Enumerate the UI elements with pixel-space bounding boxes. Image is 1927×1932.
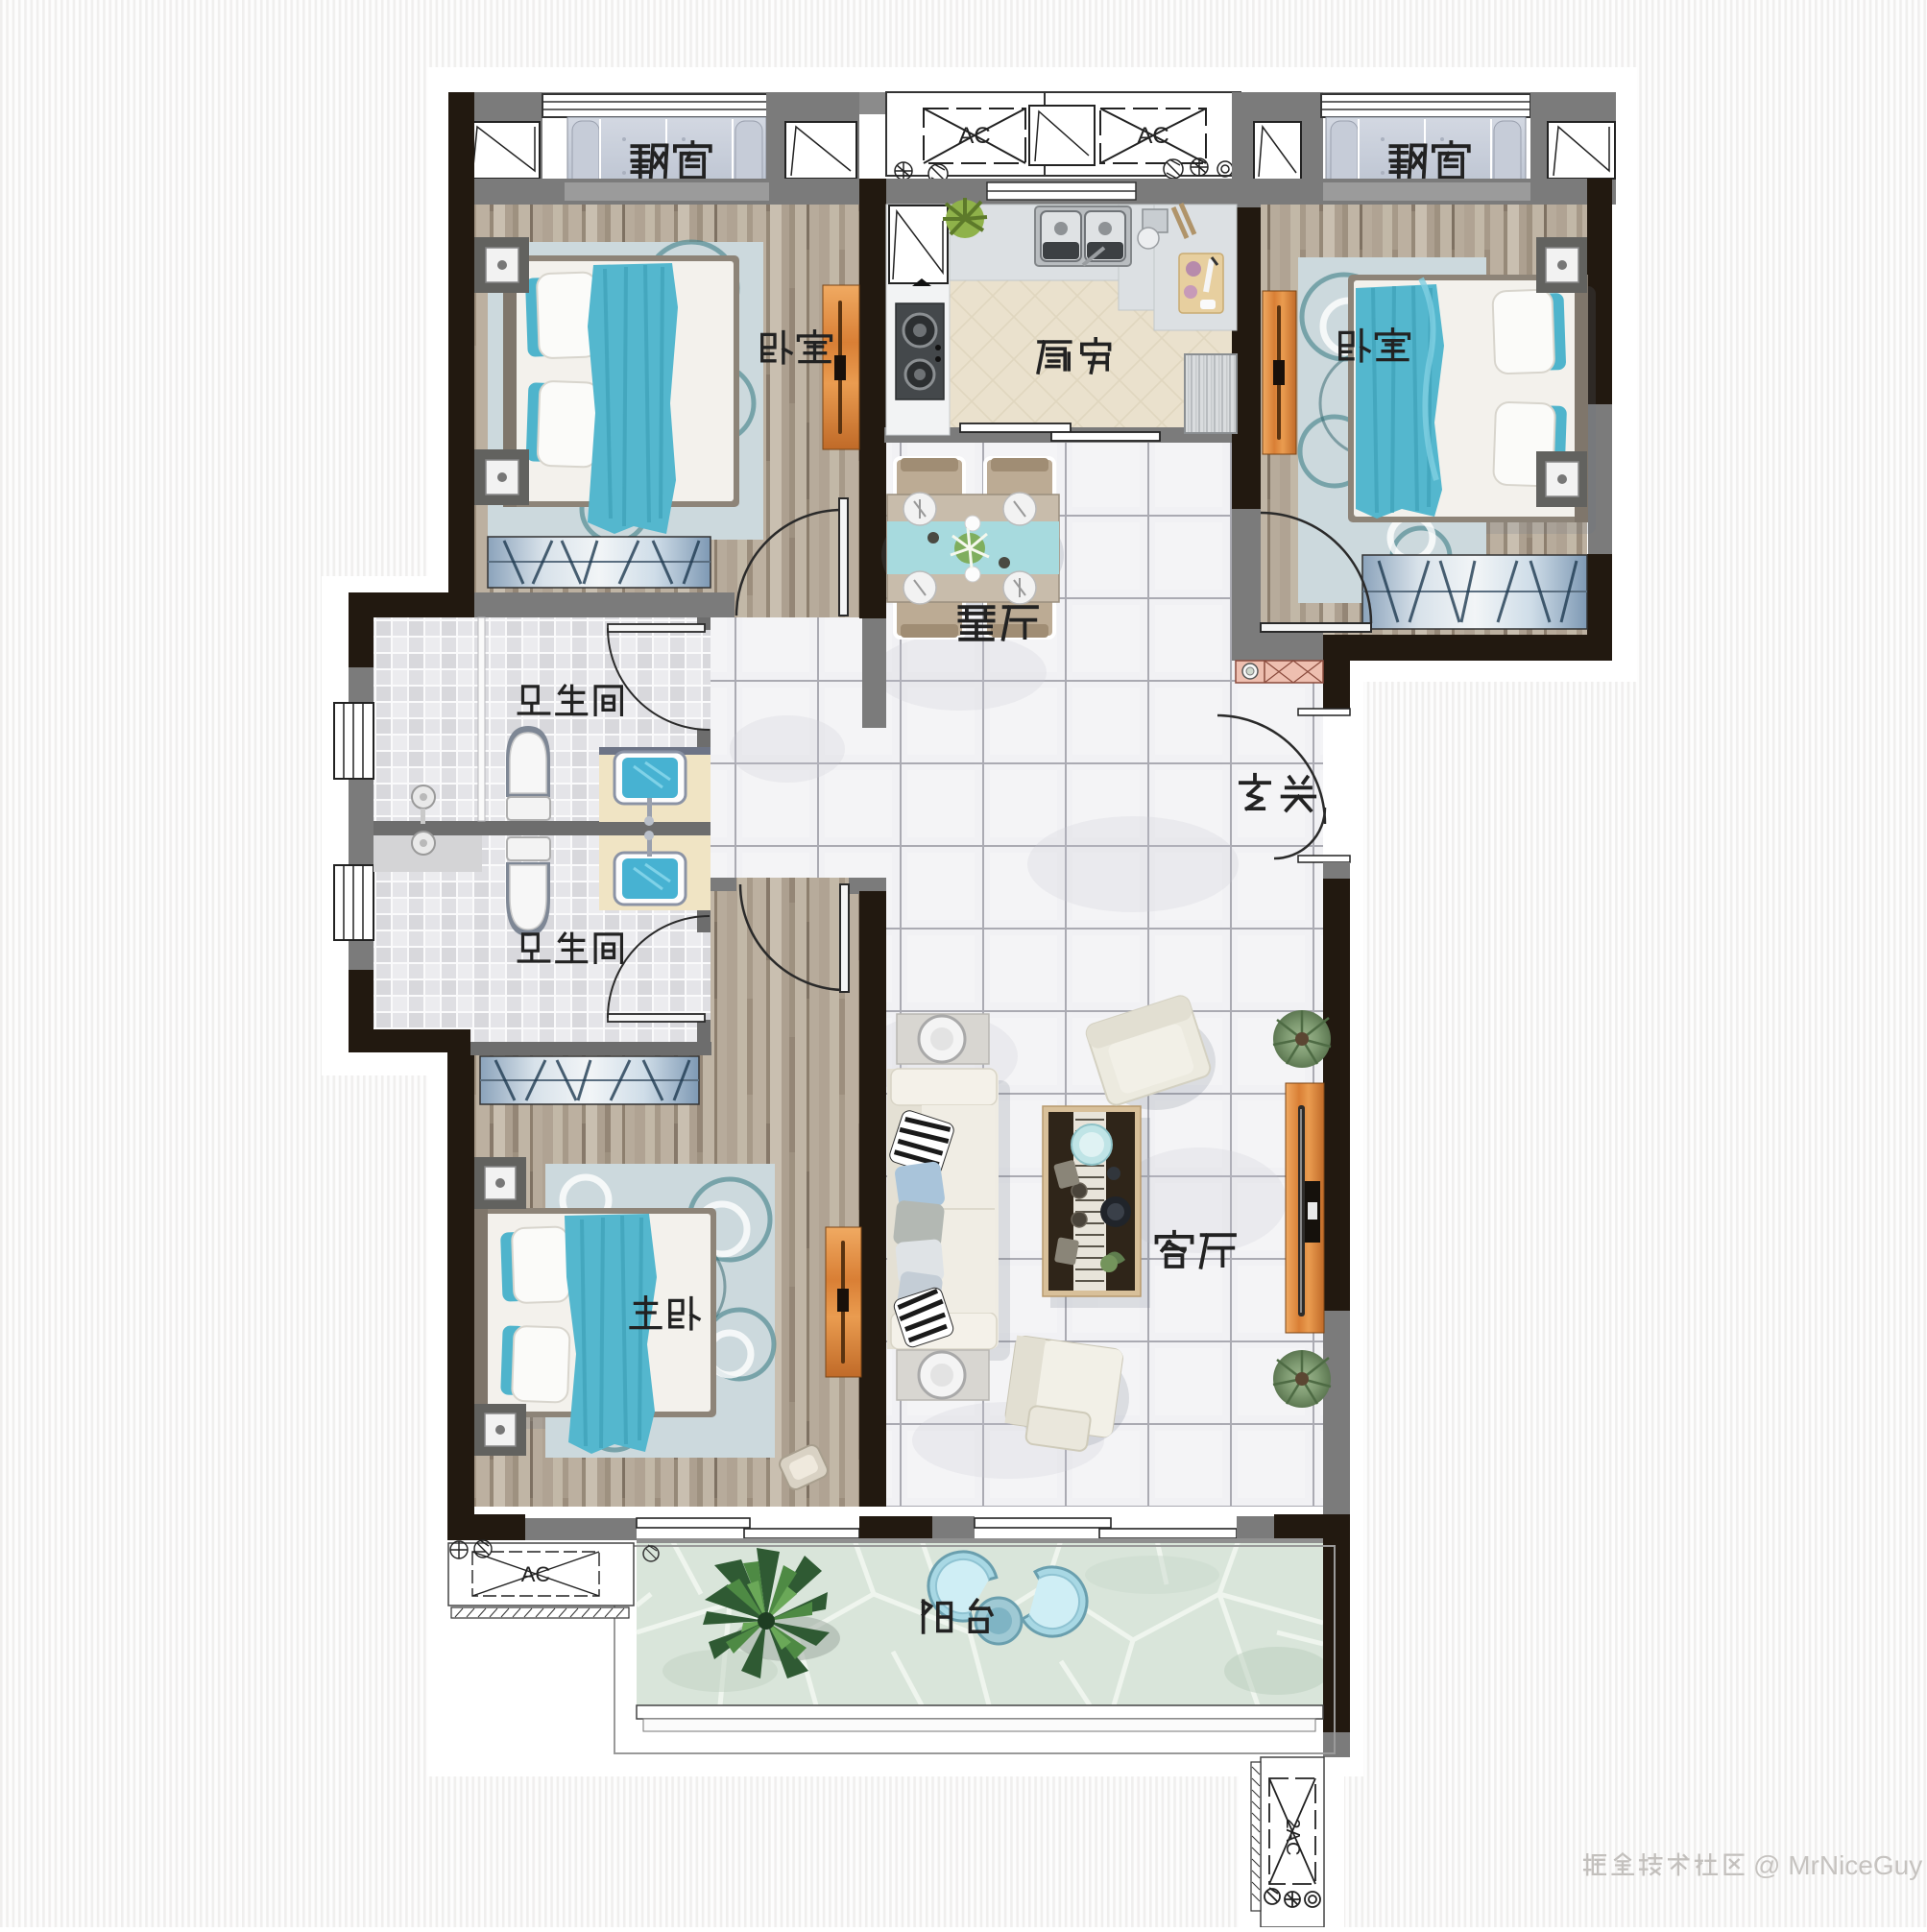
- svg-text:AC: AC: [521, 1562, 551, 1586]
- svg-text:AC: AC: [1137, 123, 1168, 149]
- svg-text:AC: AC: [958, 123, 990, 149]
- svg-text:2AC: 2AC: [1282, 1819, 1303, 1856]
- svg-text:@ MrNiceGuy: @ MrNiceGuy: [1753, 1850, 1922, 1880]
